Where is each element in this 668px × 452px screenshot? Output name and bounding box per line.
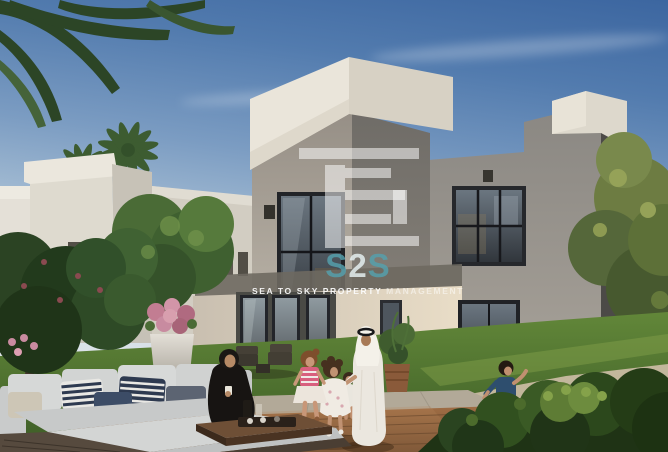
scene-art xyxy=(0,0,668,452)
villa-photo: S2S SEA TO SKY PROPERTY MANAGEMENT xyxy=(0,0,668,452)
neighbor-window xyxy=(238,252,248,276)
wing-window xyxy=(452,186,526,266)
wall-lamp-icon xyxy=(483,170,493,182)
wall-lamp-icon xyxy=(264,205,275,219)
palm-fronds-icon xyxy=(0,0,235,128)
